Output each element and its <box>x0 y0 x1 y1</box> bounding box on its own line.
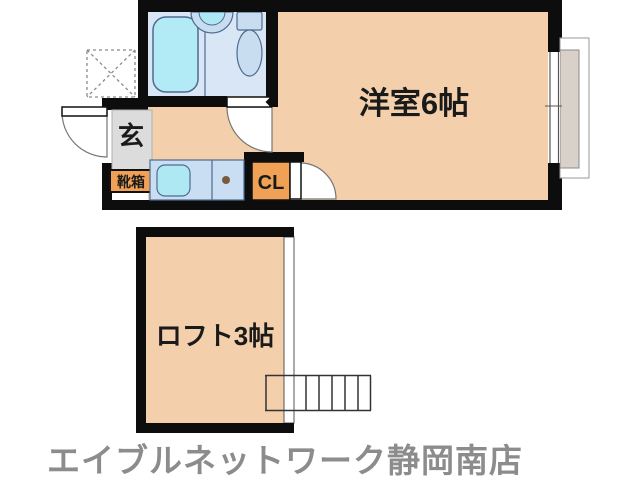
store-name-text: エイブルネットワーク静岡南店 <box>47 442 523 479</box>
wall-bottom <box>102 200 562 210</box>
kitchen-sink-icon <box>157 165 190 196</box>
floor-plan: 洋室6帖 玄 靴箱 CL ロフト3帖 エイブルネットワーク静岡南店 <box>0 0 640 480</box>
wall-loft-top <box>136 227 294 237</box>
entrance-door-swing-icon <box>62 112 107 157</box>
burner-icon <box>222 176 230 184</box>
entrance-label: 玄 <box>118 121 144 151</box>
wall-bath-left <box>138 0 148 110</box>
room-door-leaf-icon <box>290 162 301 199</box>
floor-plan-svg: 洋室6帖 玄 靴箱 CL ロフト3帖 エイブルネットワーク静岡南店 <box>0 0 640 480</box>
toilet-bowl-icon <box>237 30 262 76</box>
wall-top <box>138 0 562 12</box>
wall-loft-bottom <box>136 423 294 433</box>
closet-label: CL <box>258 172 285 194</box>
main-room-label: 洋室6帖 <box>359 86 469 121</box>
toilet-tank-icon <box>237 12 262 30</box>
wall-loft-left <box>136 227 146 433</box>
bathtub-icon <box>153 17 198 92</box>
wall-bath-room-divider <box>266 0 278 107</box>
shoe-box-label: 靴箱 <box>117 174 145 190</box>
wall-cl-left <box>244 152 252 200</box>
wall-cl-top <box>244 152 304 162</box>
entrance-door-leaf-icon <box>62 107 107 116</box>
shutter-panel-icon <box>560 50 579 168</box>
loft-label: ロフト3帖 <box>156 321 274 351</box>
bathroom-door-leaf-icon <box>227 97 270 107</box>
loft-open-side <box>284 237 294 423</box>
washing-machine-space-icon <box>87 50 135 97</box>
wall-bath-bottom <box>138 96 227 107</box>
